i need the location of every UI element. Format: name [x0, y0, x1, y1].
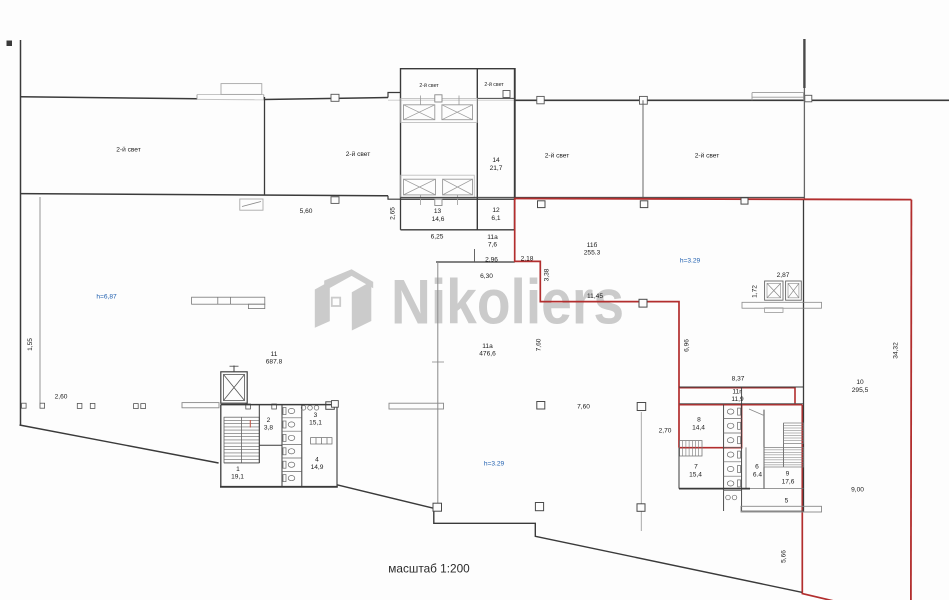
svg-text:17,6: 17,6 [782, 479, 795, 486]
svg-text:2,96: 2,96 [485, 257, 498, 264]
svg-text:6,1: 6,1 [491, 215, 500, 222]
svg-text:h=3.29: h=3.29 [484, 461, 505, 468]
svg-text:Nikoliers: Nikoliers [391, 268, 624, 338]
svg-text:2-й свет: 2-й свет [116, 146, 141, 154]
svg-text:11а: 11а [487, 234, 498, 241]
svg-text:14,9: 14,9 [311, 464, 324, 471]
svg-text:11,45: 11,45 [587, 293, 603, 300]
svg-text:11,9: 11,9 [731, 396, 744, 403]
svg-text:2-й свет: 2-й свет [346, 150, 371, 158]
svg-text:2: 2 [267, 417, 271, 424]
svg-text:2,87: 2,87 [777, 272, 790, 279]
svg-text:9,00: 9,00 [851, 487, 864, 494]
svg-text:1,55: 1,55 [27, 338, 34, 351]
svg-text:14,6: 14,6 [432, 216, 445, 223]
svg-text:масштаб 1:200: масштаб 1:200 [388, 562, 470, 576]
svg-text:5: 5 [785, 498, 789, 505]
svg-text:9: 9 [786, 471, 790, 478]
svg-text:11: 11 [271, 351, 278, 358]
svg-text:476,6: 476,6 [479, 351, 496, 358]
svg-text:2-й свет: 2-й свет [545, 152, 570, 160]
svg-text:5,66: 5,66 [781, 550, 788, 563]
svg-text:13: 13 [434, 208, 442, 215]
svg-text:11а: 11а [482, 343, 493, 350]
svg-text:2,70: 2,70 [659, 428, 672, 435]
svg-text:687.8: 687.8 [266, 359, 283, 366]
svg-text:5,60: 5,60 [300, 208, 313, 215]
svg-text:7: 7 [694, 464, 698, 471]
svg-text:295,5: 295,5 [852, 387, 869, 394]
svg-text:15,1: 15,1 [309, 420, 322, 427]
svg-text:12: 12 [492, 207, 500, 214]
svg-text:h=6,87: h=6,87 [96, 294, 117, 301]
svg-text:6,96: 6,96 [684, 339, 691, 352]
svg-text:7,60: 7,60 [577, 404, 590, 411]
svg-text:6,25: 6,25 [431, 234, 444, 241]
svg-text:15,4: 15,4 [689, 472, 702, 479]
svg-text:10: 10 [856, 379, 864, 386]
svg-text:2,65: 2,65 [390, 207, 397, 220]
svg-text:3: 3 [314, 412, 318, 419]
svg-text:255.3: 255.3 [584, 250, 601, 257]
svg-text:h=3.29: h=3.29 [680, 258, 701, 265]
svg-text:2,60: 2,60 [55, 394, 68, 401]
svg-text:2-й свет: 2-й свет [695, 152, 720, 160]
svg-text:3,38: 3,38 [544, 268, 551, 281]
svg-text:8,37: 8,37 [732, 376, 745, 383]
svg-text:6: 6 [755, 464, 759, 471]
svg-text:1: 1 [236, 466, 240, 473]
svg-text:6.4: 6.4 [753, 472, 762, 479]
svg-text:4: 4 [315, 457, 319, 464]
svg-text:3,8: 3,8 [264, 425, 273, 432]
svg-text:7,6: 7,6 [488, 242, 497, 249]
svg-text:6,30: 6,30 [480, 273, 493, 280]
svg-text:11г: 11г [732, 389, 742, 396]
svg-text:34,32: 34,32 [893, 342, 900, 359]
svg-text:21,7: 21,7 [490, 165, 503, 172]
svg-text:19,1: 19,1 [231, 474, 244, 481]
svg-text:14: 14 [492, 157, 500, 164]
svg-text:11б: 11б [587, 241, 598, 249]
svg-text:14,4: 14,4 [692, 425, 705, 432]
svg-text:2,18: 2,18 [521, 256, 534, 263]
svg-text:7,60: 7,60 [536, 338, 543, 351]
svg-text:1,72: 1,72 [752, 285, 759, 298]
svg-text:2-й свет: 2-й свет [419, 82, 439, 89]
svg-text:8: 8 [697, 417, 701, 424]
svg-text:2-й свет: 2-й свет [484, 81, 504, 88]
